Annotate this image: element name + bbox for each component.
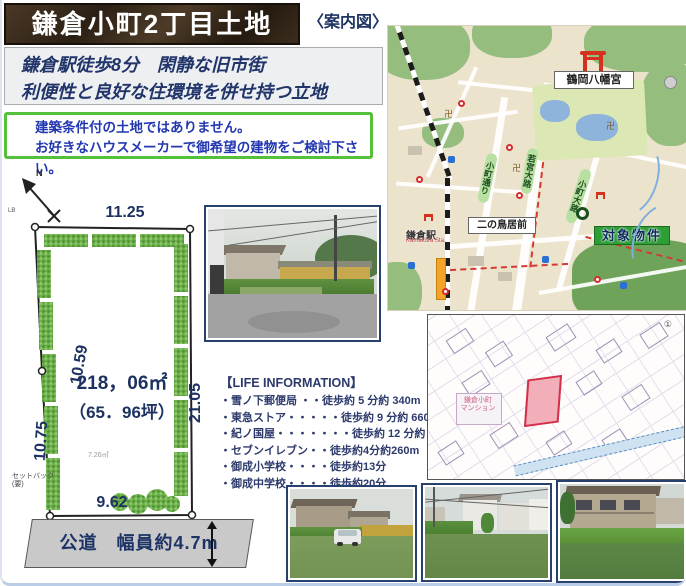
guide-map: 鶴岡八幡宮 小町通り 若宮大路 小町大路 鎌倉駅 Kamakura Sta. 二… [387,25,686,311]
flyer-page: 鎌倉小町2丁目土地 〈案内図〉 鎌倉駅徒歩8分 閑静な旧市街 利便性と良好な住環… [0,0,686,586]
dim-bottom: 9.62 [82,494,142,512]
photo-tree [481,513,494,533]
life-info-item: ・紀ノ国屋・・・・・・・徒歩約 12 分約 900m [220,426,435,443]
dim-top: 11.25 [90,204,160,222]
photo-car-windshield [338,530,357,536]
building-outline [437,440,464,465]
cadastral-map: 鎌倉小町 マンション ① [427,314,685,480]
dim-right: 21.05 [187,371,205,435]
shrine-pond [540,100,570,122]
catch-line-2: 利便性と良好な住環境を併せ持つ立地 [21,79,382,106]
life-info-item: ・東急ストア・・・・・徒歩約 9 分約 660m [220,410,435,427]
photo-window [624,500,640,510]
school-icon [448,156,455,163]
photo-house [499,503,529,530]
site-photo-3-image [560,484,684,579]
poi-icon [506,144,513,151]
building-outline [545,323,576,351]
photo-window [576,500,592,510]
building-outline [485,340,513,367]
shrine-label: 鶴岡八幡宮 [554,71,634,89]
life-info-item: ・雪ノ下郵便局 ・・徒歩約 5 分約 340m [220,393,435,410]
catch-line-1: 鎌倉駅徒歩8分 閑静な旧市街 [21,52,382,79]
life-info-item: ・御成小学校・・・・徒歩約13分 [220,459,435,476]
photo-car-wheel [337,542,343,546]
site-photo-1-image [290,489,413,578]
mansion-label-line2: マンション [458,405,498,413]
school-icon [620,282,627,289]
site-photo-3 [556,480,686,583]
public-road-shape: 公道 幅員約4.7m [24,519,254,568]
street-view-photo [204,205,381,342]
building-outline [489,422,518,449]
torii-mark-icon [596,192,605,199]
poi-icon [416,176,423,183]
station-sublabel: Kamakura Sta. [406,238,446,244]
map-building [468,256,484,266]
torii-post [583,53,587,71]
photo-pole [334,215,337,281]
plot-inner-note: 7.26㎡ [88,450,109,460]
torii-icon [580,51,606,71]
plot-area-tsubo: （65．96坪） [60,398,184,423]
building-outline [575,370,602,395]
photo-grass [425,534,548,578]
setback-note: セットバック(要) [12,473,58,490]
property-location-ring [576,207,589,220]
photo-pole [433,487,435,527]
life-info-item: ・セブンイレブン・・徒歩約4分約260m [220,443,435,460]
arrow-line [211,525,213,563]
photo-road-patch [248,311,340,333]
photo-balcony-rail [572,512,654,514]
building-outline [621,384,650,411]
temple-mark: 卍 [444,110,453,119]
photo-window [600,500,616,510]
poi-icon [594,276,601,283]
page-title: 鎌倉小町2丁目土地 [4,3,300,45]
nino-torii-label: 二の鳥居前 [468,217,536,234]
map-street [396,181,526,194]
guide-map-caption: 〈案内図〉 [308,8,388,32]
school-icon [408,262,415,269]
torii-mark-icon [424,214,433,221]
photo-house [656,498,684,524]
temple-mark: 卍 [512,164,521,173]
plot-area-sqm: 218，06㎡ [60,368,184,395]
cadastral-river [513,421,685,477]
map-building [408,146,422,155]
road-width-arrow [205,521,219,567]
temple-mark: 卍 [606,122,615,131]
poi-icon [516,192,523,199]
photo-car-wheel [352,542,358,546]
target-parcel [524,375,562,427]
notice-box: 建築条件付の土地ではありません。 お好きなハウスメーカーで御希望の建物をご検討下… [4,112,373,159]
photo-house [296,506,352,528]
photo-grass [560,543,684,579]
city-office-icon [664,76,677,89]
site-photo-2 [421,483,552,582]
notice-line-1: 建築条件付の土地ではありません。 [35,118,370,138]
forest-patch [387,262,422,311]
life-information: 【LIFE INFORMATION】 ・雪ノ下郵便局 ・・徒歩約 5 分約 34… [220,372,435,492]
mansion-label-line1: 鎌倉小町 [458,397,498,405]
catch-copy: 鎌倉駅徒歩8分 閑静な旧市街 利便性と良好な住環境を併せ持つ立地 [4,47,383,105]
mansion-label: 鎌倉小町 マンション [458,397,498,413]
site-photo-2-image [425,487,548,578]
torii-post [599,53,603,71]
photo-tree [560,492,575,524]
building-outline [595,338,622,363]
site-photo-1 [286,485,417,582]
poi-icon [458,100,465,107]
forest-patch [640,62,686,146]
building-outline [446,328,475,354]
arrow-head-up [207,521,217,529]
forest-patch [472,25,552,58]
school-icon [542,256,549,263]
street-view-photo-image [208,209,377,338]
photo-house [529,499,548,530]
life-information-heading: 【LIFE INFORMATION】 [220,372,435,391]
map-building [498,272,512,281]
photo-house [226,253,280,281]
circled-number: ① [664,319,672,330]
poi-icon [442,288,449,295]
arrow-head-down [207,559,217,567]
